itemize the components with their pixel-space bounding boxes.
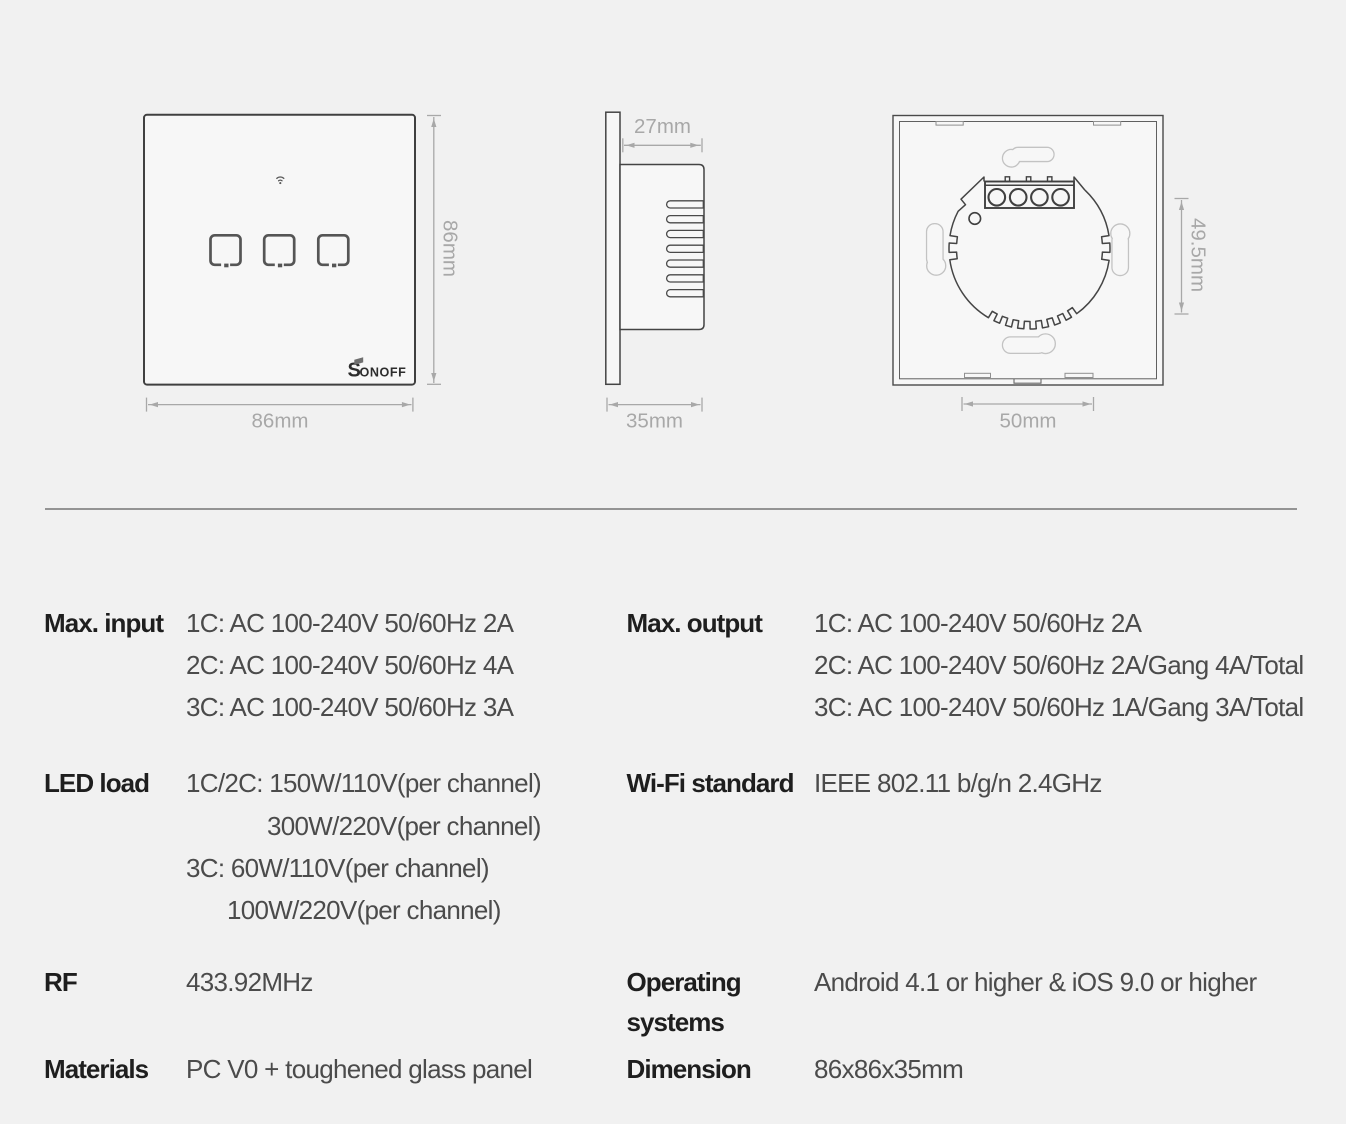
svg-text:ONOFF: ONOFF (360, 365, 407, 379)
svg-text:50mm: 50mm (1000, 410, 1057, 433)
svg-text:49.5mm: 49.5mm (1187, 218, 1210, 292)
svg-text:27mm: 27mm (634, 115, 691, 138)
svg-text:35mm: 35mm (626, 410, 683, 433)
svg-text:86mm: 86mm (252, 410, 309, 433)
svg-text:86mm: 86mm (439, 220, 462, 277)
